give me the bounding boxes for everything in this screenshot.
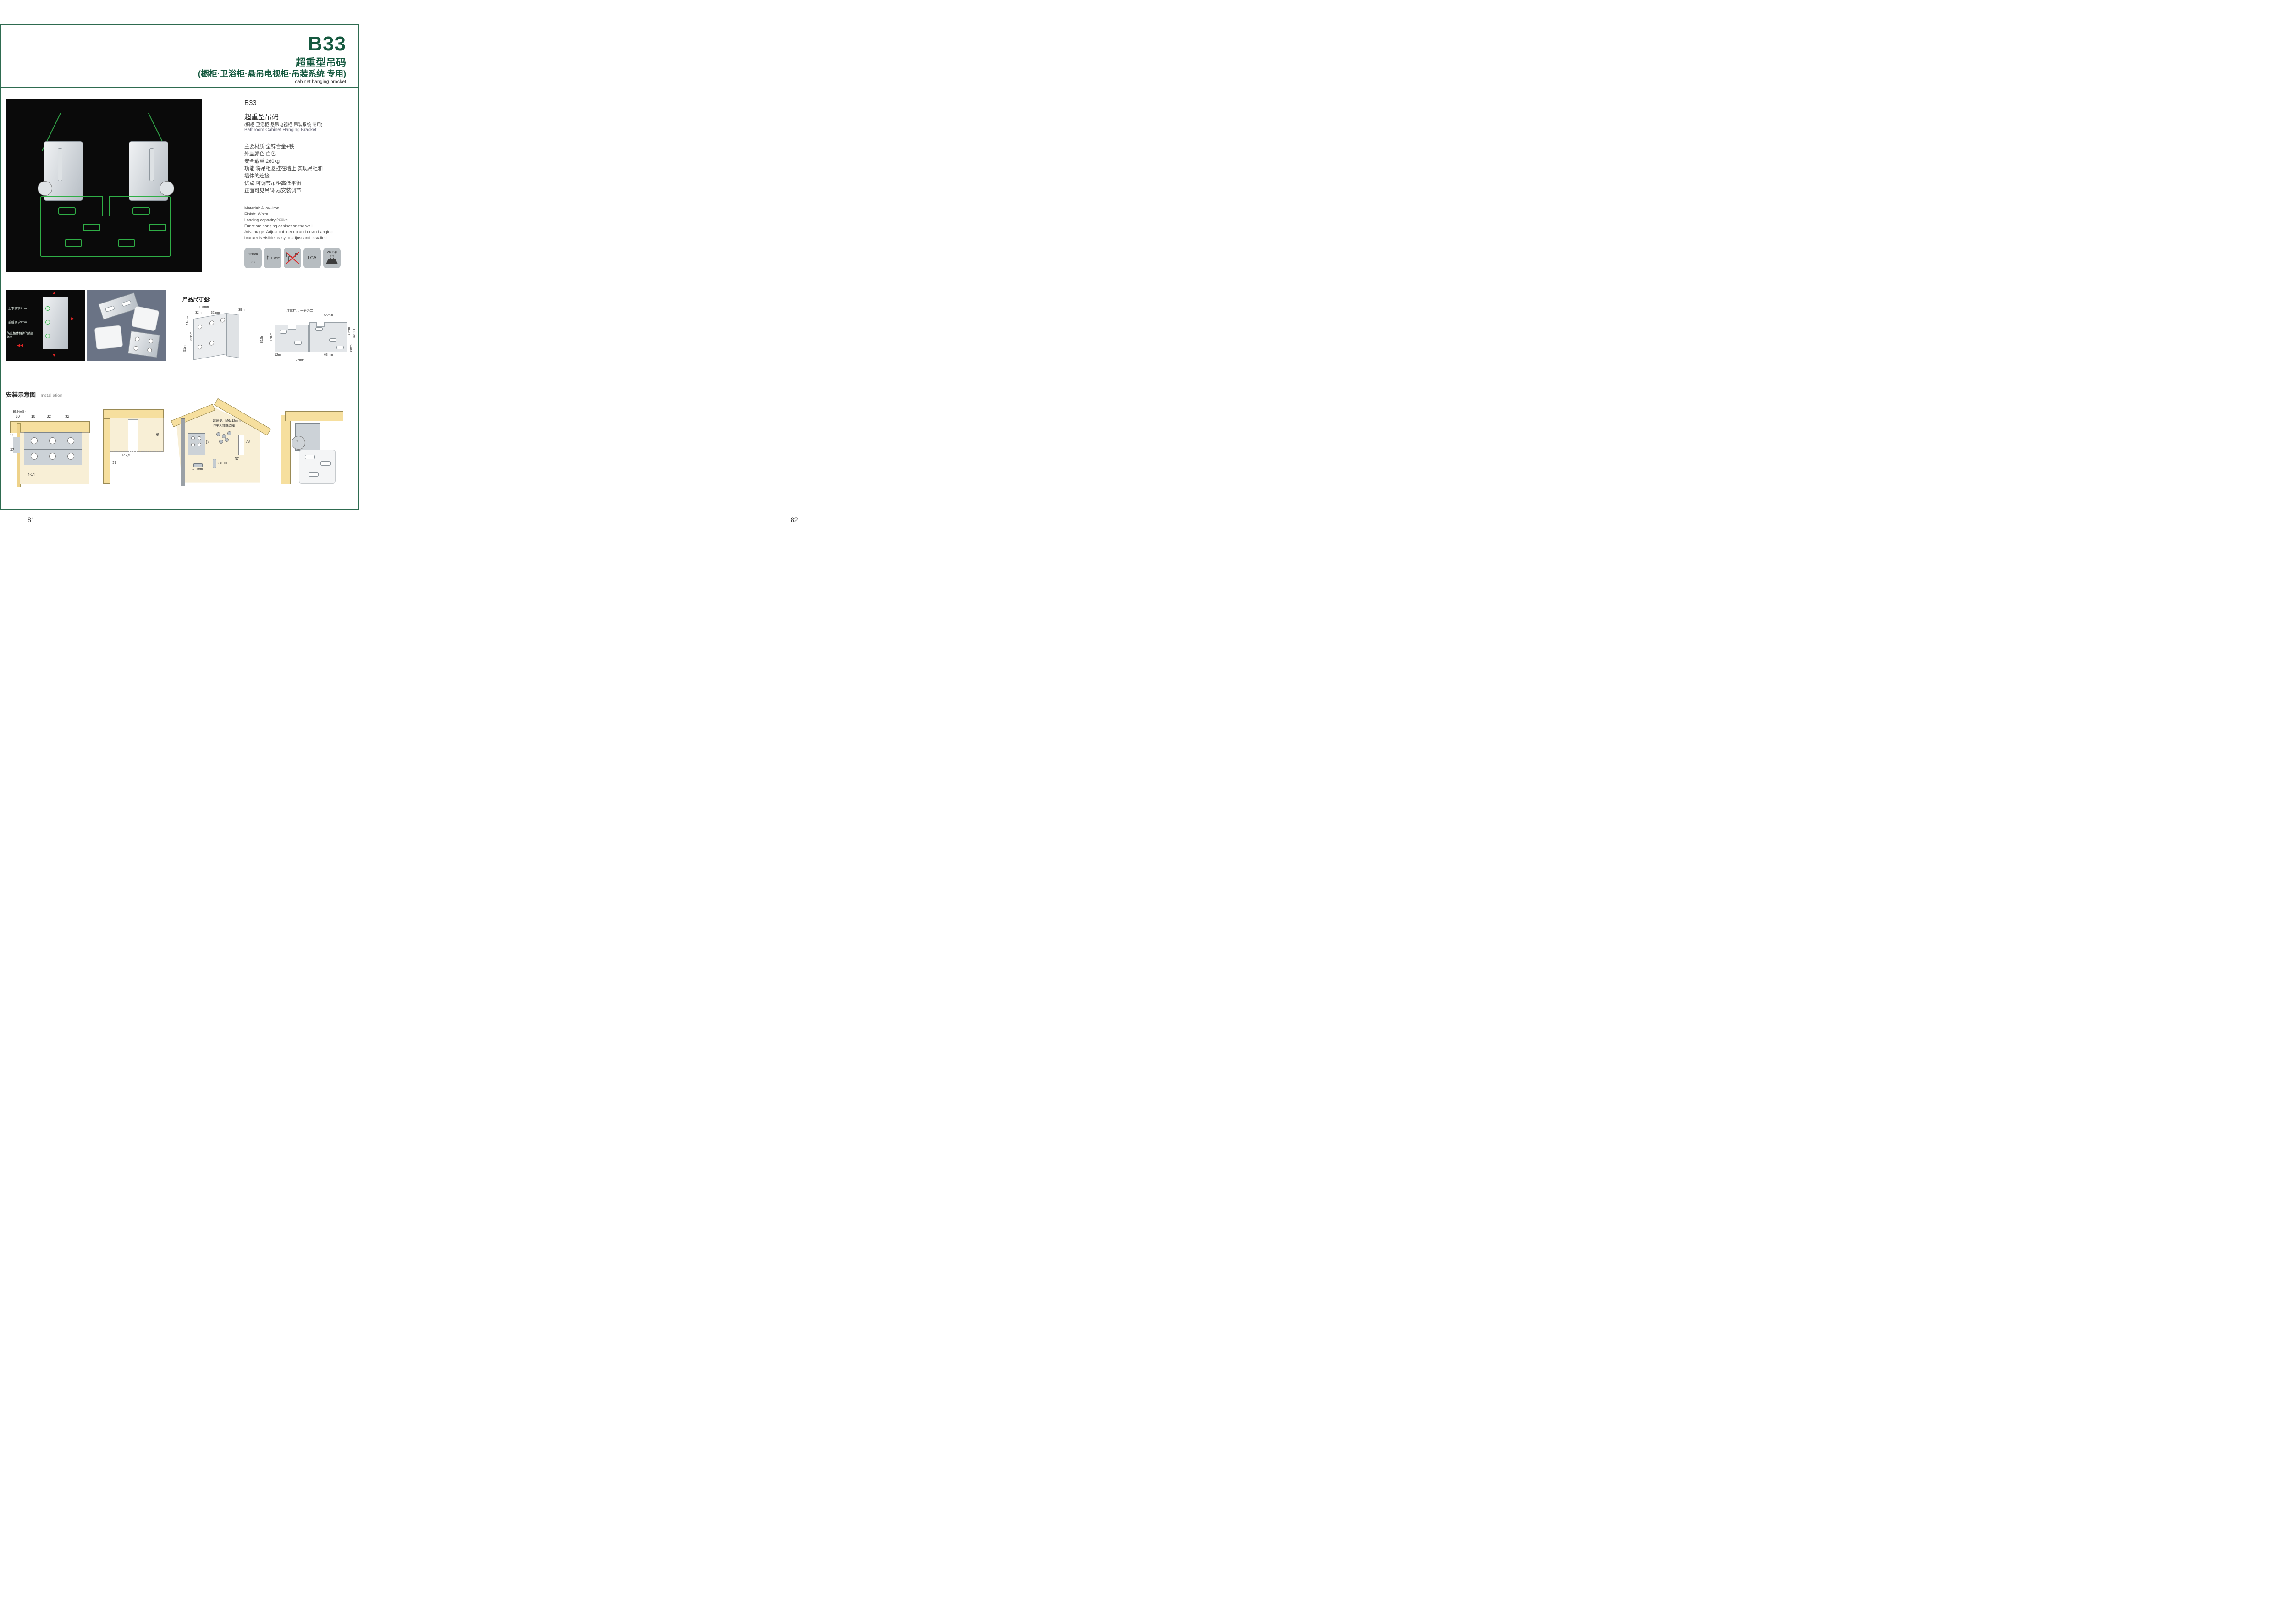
dim-label: 78 xyxy=(246,440,250,444)
red-right-arrow: ▶ xyxy=(71,316,74,321)
dim-label: 20 xyxy=(16,414,20,418)
spec-line: Function: hanging cabinet on the wall xyxy=(244,223,333,229)
dim-label: 11 xyxy=(10,433,14,437)
h-arrow-glyph xyxy=(244,257,262,264)
dim-label: 63mm xyxy=(324,353,333,357)
dim-label: 32mm xyxy=(211,311,220,314)
right-product-subtitle-en: cabinet hanging bracket xyxy=(295,79,347,84)
right-install-diagram-3: 建议使用M6x12mm 的平头螺丝固定 ▷ 78 37 9mm 9mm xyxy=(170,405,264,494)
dim-label: 10 xyxy=(31,414,35,418)
dim-label: 32 xyxy=(65,414,69,418)
bracket-right xyxy=(129,141,168,201)
right-install-diagram-1: 最小间距 20 10 32 32 11 32 4-14 xyxy=(10,409,90,492)
right-installation-heading: 安装示意图 Installation xyxy=(6,390,62,399)
red-down-arrow: ▼ xyxy=(52,353,56,358)
plate-dimension-drawing: 连体挂片 一分为二 55mm 39mm 55mm 17mm 8mm 12mm 6… xyxy=(269,306,357,363)
screw-cross: + xyxy=(296,439,298,444)
adjust-label: 防止柜体翻转的锁紧螺丝 xyxy=(7,332,35,339)
right-page-number: 82 xyxy=(791,516,798,523)
spec-line: 外盖颜色:白色 xyxy=(244,150,323,158)
arrow-glyph: ▷ xyxy=(206,440,210,445)
spec-line: 主要材质:全锌合金+铁 xyxy=(244,143,323,150)
adjust-label: 前后调节9mm xyxy=(8,319,27,324)
icon-label: 13mm xyxy=(267,256,284,260)
spec-line: Material: Alloy+iron xyxy=(244,205,333,211)
dimension-heading: 产品尺寸图: xyxy=(182,296,210,303)
catalog-spread: B17 全钢重型吊码 cabinet hanging bracket xyxy=(0,0,830,541)
installation-heading-cn: 安装示意图 xyxy=(6,391,36,398)
height-arrow-icon: 13mm xyxy=(264,248,281,268)
info-name-en: Bathroom Cabinet Hanging Bracket xyxy=(244,127,316,132)
right-install-diagram-2: 78 R 2,5 37 xyxy=(99,409,164,492)
red-left-arrow: ◀◀ xyxy=(17,343,23,348)
spec-line: Finish: White xyxy=(244,211,333,217)
dim-label: 80.5mm xyxy=(260,332,264,343)
load-weight-icon: 260Kg xyxy=(323,248,341,268)
adjust-label: 上下调节9mm xyxy=(8,306,27,310)
icon-label: LGA xyxy=(303,255,321,260)
specs-cn: 主要材质:全锌合金+铁 外盖颜色:白色 安全载重:260kg 功能:将吊柜悬挂在… xyxy=(244,143,323,194)
dim-label: 104mm xyxy=(199,306,209,309)
lga-badge: LGA xyxy=(303,248,321,268)
dim-note: 连体挂片 一分为二 xyxy=(286,308,313,313)
green-wireframe-plate xyxy=(40,196,171,257)
parts-photo xyxy=(87,290,166,361)
dim-label: 77mm xyxy=(296,359,304,362)
left-page-number: 81 xyxy=(28,516,35,523)
dim-label: 37 xyxy=(235,457,239,461)
dim-label: R 2,5 xyxy=(122,454,130,457)
cover-part xyxy=(94,325,123,350)
dim-label: 32mm xyxy=(190,332,193,341)
spec-line: 安全载重:260kg xyxy=(244,158,323,165)
dim-note: 的平头螺丝固定 xyxy=(213,423,235,428)
spec-line: 墙体的连接 xyxy=(244,172,323,180)
right-install-diagram-4: + xyxy=(272,411,348,489)
info-name-cn: 超重型吊码 xyxy=(244,112,279,121)
right-header-divider xyxy=(1,87,358,88)
dim-label: 55mm xyxy=(353,329,356,338)
adjustment-feature-photo: 上下调节9mm 前后调节9mm 防止柜体翻转的锁紧螺丝 ▲ ▼ ◀◀ ▶ xyxy=(6,290,85,361)
installation-heading-en: Installation xyxy=(40,393,62,398)
dim-label: 9mm xyxy=(220,462,227,465)
dim-label: 32 xyxy=(47,414,51,418)
info-code: B33 xyxy=(244,99,257,107)
spec-line: bracket is visible, easy to adjust and i… xyxy=(244,235,333,241)
dim-label: 17mm xyxy=(270,333,273,341)
bracket-part xyxy=(128,331,160,358)
dim-label: 39mm xyxy=(348,327,351,336)
dim-note: 最小间距 xyxy=(13,409,26,414)
right-product-title-cn2: (橱柜·卫浴柜·悬吊电视柜·吊装系统 专用) xyxy=(198,67,346,79)
cover-part xyxy=(131,306,160,331)
spec-line: 功能:将吊柜悬挂在墙上,实现吊柜和 xyxy=(244,165,323,172)
dim-label: 51mm xyxy=(183,343,187,352)
dim-label: 8mm xyxy=(350,344,353,352)
icon-label: 260Kg xyxy=(323,250,341,254)
white-cover xyxy=(299,450,336,484)
width-arrow-icon: 12mm xyxy=(244,248,262,268)
bracket-left xyxy=(44,141,83,201)
dim-label: 78 xyxy=(155,433,160,437)
bracket-dimension-drawing: 104mm 39mm 32mm 32mm 11mm 32mm 51mm 80.5… xyxy=(182,306,267,363)
right-page-frame: B33 超重型吊码 (橱柜·卫浴柜·悬吊电视柜·吊装系统 专用) cabinet… xyxy=(0,24,359,510)
no-drill-icon xyxy=(284,248,301,268)
spec-line: 正面可见吊码,易安装调节 xyxy=(244,187,323,194)
dim-label: 32mm xyxy=(195,311,204,314)
dim-label: 9mm xyxy=(196,468,203,471)
spec-line: Loading capacity:260kg xyxy=(244,217,333,223)
right-product-photo xyxy=(6,99,202,272)
dim-label: 39mm xyxy=(238,308,247,312)
dim-label: 32 xyxy=(10,448,14,452)
info-name-cn2: (橱柜·卫浴柜·悬吊电视柜·吊装系统 专用) xyxy=(244,121,322,127)
dim-note: 建议使用M6x12mm xyxy=(213,418,241,423)
specs-en: Material: Alloy+iron Finish: White Loadi… xyxy=(244,205,333,241)
dim-label: 55mm xyxy=(324,314,333,317)
dim-label: 4-14 xyxy=(28,473,35,477)
red-up-arrow: ▲ xyxy=(52,291,56,296)
icon-label: 12mm xyxy=(244,252,262,256)
dim-label: 12mm xyxy=(275,353,283,357)
spec-line: Advantage: Adjust cabinet up and down ha… xyxy=(244,229,333,235)
spec-line: 优点:可调节吊柜高低平衡 xyxy=(244,180,323,187)
dim-label: 11mm xyxy=(186,316,189,325)
dim-label: 37 xyxy=(112,461,116,465)
right-product-code-heading: B33 xyxy=(308,33,346,55)
